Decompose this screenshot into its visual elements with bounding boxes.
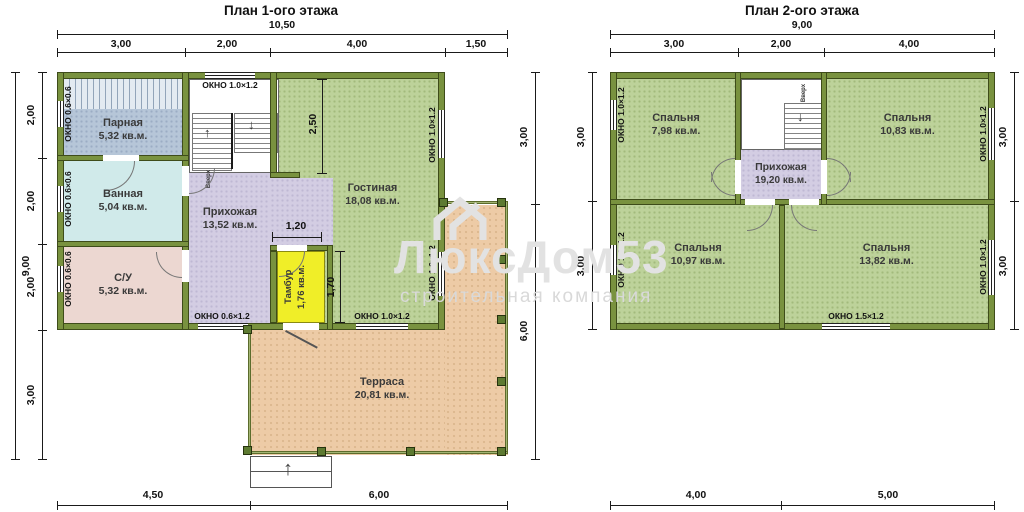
room-name: Прихожая xyxy=(755,161,807,175)
room-area: 5,04 кв.м. xyxy=(99,201,148,215)
terrace-railing xyxy=(505,201,508,453)
dim-tick xyxy=(57,501,58,510)
dim-tick xyxy=(781,501,782,510)
room-label-bedroom-br: Спальня 13,82 кв.м. xyxy=(785,225,988,285)
dim-line xyxy=(322,79,323,174)
dim-tick xyxy=(11,72,20,73)
dim-label: 3,00 xyxy=(519,127,530,147)
dim-tick xyxy=(994,501,995,510)
dim-tick xyxy=(1010,201,1019,202)
dim-line xyxy=(340,251,341,323)
room-label-bedroom-bl: Спальня 10,97 кв.м. xyxy=(617,225,779,285)
dim-tick xyxy=(824,48,825,57)
dim-tick xyxy=(588,72,597,73)
room-area: 10,97 кв.м. xyxy=(671,255,726,269)
dim-label: 4,00 xyxy=(686,490,706,501)
window-label: ОКНО 1.0×1.2 xyxy=(428,245,437,301)
dim-tick xyxy=(994,30,995,39)
terrace-railing xyxy=(248,451,508,454)
dim-tick xyxy=(185,48,186,57)
dim-line xyxy=(57,34,508,35)
dim-label: 2,50 xyxy=(308,114,319,134)
door-opening xyxy=(182,166,189,196)
dim-tick xyxy=(610,30,611,39)
room-area: 7,98 кв.м. xyxy=(652,125,701,139)
dim-tick xyxy=(610,48,611,57)
down-arrow-icon: ↓ xyxy=(797,110,804,123)
dim-tick xyxy=(57,48,58,57)
dim-line xyxy=(535,72,536,460)
dim-tick xyxy=(321,232,322,242)
dim-tick xyxy=(531,72,540,73)
dim-tick xyxy=(335,322,345,323)
dim-tick xyxy=(317,79,327,80)
room-label-vannaya: Ванная 5,04 кв.м. xyxy=(64,171,182,231)
dim-tick xyxy=(531,204,540,205)
terrace-post xyxy=(497,198,506,207)
room-label-tambur: Тамбур 1,76 кв.м. xyxy=(283,254,321,320)
dim-tick xyxy=(11,459,20,460)
room-name: Прихожая xyxy=(203,205,257,219)
room-area: 13,82 кв.м. xyxy=(859,255,914,269)
terrace-post xyxy=(406,447,415,456)
door-opening xyxy=(283,323,319,330)
dim-label: 3,00 xyxy=(664,39,684,50)
dim-label: 9,00 xyxy=(21,256,32,276)
room-label-prihozhaya: Прихожая 13,52 кв.м. xyxy=(178,198,282,240)
door-opening xyxy=(182,250,189,282)
room-area: 5,32 кв.м. xyxy=(99,130,148,144)
dim-tick xyxy=(531,459,540,460)
stairwell: ↓ xyxy=(741,79,823,150)
dim-tick xyxy=(38,158,47,159)
dim-line xyxy=(610,505,995,506)
room-name: Гостиная xyxy=(348,181,398,195)
window-label: ОКНО 1.5×1.2 xyxy=(828,312,884,321)
dim-label: 3,00 xyxy=(111,39,131,50)
dim-tick xyxy=(1010,72,1019,73)
dim-tick xyxy=(994,48,995,57)
dim-label: 1,20 xyxy=(286,221,306,232)
dim-label: 1,70 xyxy=(326,277,337,297)
dim-tick xyxy=(445,48,446,57)
dim-label: 3,00 xyxy=(576,127,587,147)
dim-label: 9,00 xyxy=(792,20,812,31)
window xyxy=(438,110,445,158)
floor2-title: План 2-ого этажа xyxy=(745,3,859,18)
room-area: 13,52 кв.м. xyxy=(203,219,258,233)
room-area: 20,81 кв.м. xyxy=(355,389,410,403)
room-name: Спальня xyxy=(884,111,932,125)
terrace-post xyxy=(243,446,252,455)
up-arrow-icon: ↑ xyxy=(204,126,211,139)
dim-label: 2,00 xyxy=(771,39,791,50)
room-area: 1,76 кв.м. xyxy=(296,254,309,320)
room-name: Спальня xyxy=(674,241,722,255)
window xyxy=(822,323,890,330)
dim-line xyxy=(15,72,16,460)
wall xyxy=(270,251,277,323)
room-label-bedroom-tl: Спальня 7,98 кв.м. xyxy=(617,95,735,155)
dim-label: 10,50 xyxy=(269,20,295,31)
window xyxy=(198,323,248,330)
dim-tick xyxy=(250,501,251,510)
dim-line xyxy=(57,505,508,506)
room-area: 10,83 кв.м. xyxy=(880,125,935,139)
window xyxy=(988,240,995,295)
room-label-su: С/У 5,32 кв.м. xyxy=(64,257,182,313)
entry-steps: ↑ xyxy=(250,456,332,488)
dim-label: 6,00 xyxy=(519,321,530,341)
wall xyxy=(57,241,189,247)
floorplan-canvas: План 1-ого этажа План 2-ого этажа 10,50 … xyxy=(0,0,1024,512)
room-name: С/У xyxy=(114,271,132,285)
room-name: Терраса xyxy=(360,375,404,389)
dim-tick xyxy=(610,501,611,510)
terrace-railing xyxy=(248,329,251,454)
dim-label: 3,00 xyxy=(998,127,1009,147)
dim-label: 1,50 xyxy=(466,39,486,50)
down-arrow-icon: ↓ xyxy=(248,118,255,131)
dim-tick xyxy=(57,30,58,39)
dim-label: 2,00 xyxy=(217,39,237,50)
dim-label: 3,00 xyxy=(998,256,1009,276)
stair-flight-down xyxy=(784,103,823,150)
room-label-terrasa: Терраса 20,81 кв.м. xyxy=(282,366,482,412)
dim-label: 4,00 xyxy=(347,39,367,50)
window-label: ОКНО 1.0×1.2 xyxy=(354,312,410,321)
room-label-bedroom-tr: Спальня 10,83 кв.м. xyxy=(827,95,988,155)
wall xyxy=(610,323,995,330)
up-arrow-icon: ↑ xyxy=(283,459,293,479)
room-name: Спальня xyxy=(863,241,911,255)
dim-line xyxy=(610,34,995,35)
room-label-gostinaya: Гостиная 18,08 кв.м. xyxy=(300,172,445,218)
window xyxy=(205,72,255,79)
terrace-post xyxy=(497,447,506,456)
floor1-title: План 1-ого этажа xyxy=(224,3,338,18)
room-name: Парная xyxy=(103,116,143,130)
dim-tick xyxy=(270,48,271,57)
room-area: 18,08 кв.м. xyxy=(345,195,400,209)
room-label-prihozhaya-2: Прихожая 19,20 кв.м. xyxy=(741,150,821,198)
window xyxy=(988,108,995,160)
stair-flight-up xyxy=(192,113,232,171)
dim-label: 4,00 xyxy=(899,39,919,50)
window xyxy=(356,323,408,330)
stair-divider xyxy=(231,113,233,169)
dim-tick xyxy=(588,329,597,330)
dim-tick xyxy=(507,501,508,510)
dim-line xyxy=(610,52,995,53)
dim-tick xyxy=(38,459,47,460)
dim-label: 3,00 xyxy=(576,256,587,276)
dim-label: 3,00 xyxy=(26,385,37,405)
room-area: 19,20 кв.м. xyxy=(755,174,807,187)
dim-tick xyxy=(38,72,47,73)
terrace-post xyxy=(497,377,506,386)
terrace-post xyxy=(243,325,252,334)
terrace-post xyxy=(497,255,506,264)
window-label: ОКНО 1.0×1.2 xyxy=(428,107,437,163)
terrace-post xyxy=(317,447,326,456)
window-label: ОКНО 1.0×1.2 xyxy=(202,81,258,90)
dim-line xyxy=(42,72,43,460)
dim-tick xyxy=(738,48,739,57)
room-label-parnaya: Парная 5,32 кв.м. xyxy=(64,106,182,154)
dim-label: 2,00 xyxy=(26,191,37,211)
dim-line xyxy=(57,52,508,53)
terrace-post xyxy=(497,315,506,324)
dim-label: 5,00 xyxy=(878,490,898,501)
room-terrace xyxy=(445,205,508,455)
wall xyxy=(270,172,300,178)
dim-tick xyxy=(335,251,345,252)
dim-label: 2,00 xyxy=(26,105,37,125)
dim-label: 6,00 xyxy=(369,490,389,501)
dim-tick xyxy=(507,30,508,39)
wall xyxy=(610,72,995,79)
window xyxy=(438,252,445,296)
dim-tick xyxy=(38,330,47,331)
dim-tick xyxy=(38,244,47,245)
room-area: 5,32 кв.м. xyxy=(99,285,148,299)
sauna-bench-hatch xyxy=(64,79,182,109)
dim-tick xyxy=(507,48,508,57)
staircase: ↑ ↓ xyxy=(189,79,279,173)
room-name: Тамбур xyxy=(283,254,296,320)
room-name: Ванная xyxy=(103,187,143,201)
window-label: ОКНО 0.6×1.2 xyxy=(194,312,250,321)
dim-tick xyxy=(1010,329,1019,330)
wall xyxy=(270,72,277,178)
stairs-direction-label: Вверх xyxy=(801,84,807,102)
dim-tick xyxy=(588,201,597,202)
room-name: Спальня xyxy=(652,111,700,125)
dim-label: 4,50 xyxy=(143,490,163,501)
dim-label: 2,00 xyxy=(26,277,37,297)
